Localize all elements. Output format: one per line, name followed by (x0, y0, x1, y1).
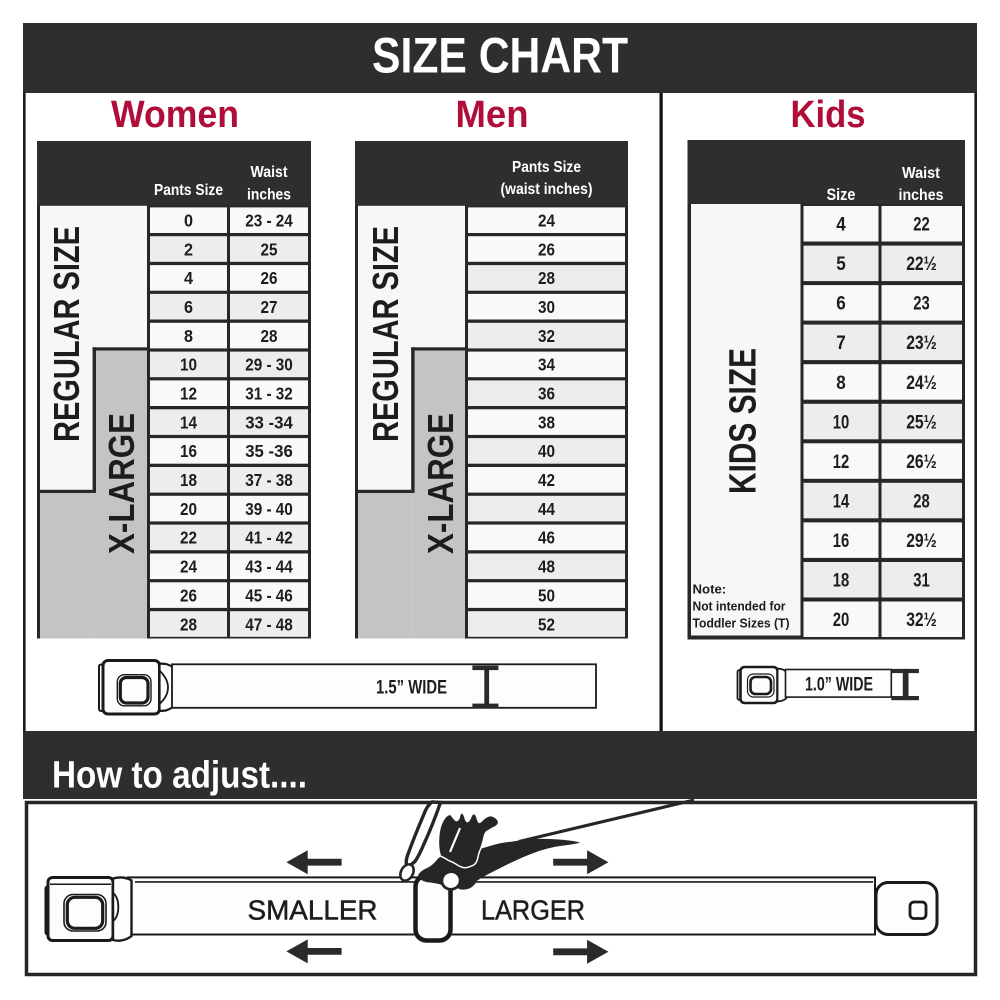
svg-text:36: 36 (538, 384, 555, 404)
svg-text:26½: 26½ (906, 452, 937, 473)
svg-text:SIZE CHART: SIZE CHART (372, 28, 628, 84)
svg-text:29 - 30: 29 - 30 (245, 355, 293, 375)
svg-text:52: 52 (538, 614, 555, 634)
svg-text:Toddler Sizes (T): Toddler Sizes (T) (693, 616, 790, 631)
svg-text:28: 28 (261, 326, 278, 346)
svg-text:20: 20 (833, 610, 850, 631)
svg-text:inches: inches (899, 187, 944, 204)
svg-text:31: 31 (913, 571, 930, 592)
svg-text:35 -36: 35 -36 (245, 441, 293, 461)
svg-text:46: 46 (538, 528, 555, 548)
svg-text:44: 44 (538, 499, 555, 519)
svg-text:30: 30 (538, 297, 555, 317)
svg-text:23½: 23½ (906, 333, 937, 354)
svg-text:Men: Men (456, 94, 529, 136)
svg-text:6: 6 (836, 294, 846, 315)
svg-text:LARGER: LARGER (481, 895, 585, 926)
svg-text:26: 26 (538, 239, 555, 259)
svg-text:Pants Size: Pants Size (154, 182, 223, 199)
svg-text:Waist: Waist (902, 165, 940, 182)
svg-text:31 - 32: 31 - 32 (245, 384, 293, 404)
svg-text:12: 12 (833, 452, 850, 473)
svg-text:12: 12 (180, 384, 197, 404)
svg-text:25½: 25½ (906, 412, 937, 433)
svg-text:18: 18 (833, 571, 850, 592)
svg-text:16: 16 (833, 531, 850, 552)
svg-text:29½: 29½ (906, 531, 937, 552)
svg-text:18: 18 (180, 470, 197, 490)
svg-text:23: 23 (913, 294, 930, 315)
svg-text:24½: 24½ (906, 373, 937, 394)
svg-text:26: 26 (180, 585, 197, 605)
svg-text:X-LARGE: X-LARGE (420, 413, 461, 554)
svg-text:4: 4 (184, 268, 193, 288)
svg-text:Pants Size: Pants Size (512, 159, 581, 176)
svg-text:8: 8 (836, 373, 846, 394)
svg-text:25: 25 (261, 239, 278, 259)
svg-text:37 - 38: 37 - 38 (245, 470, 293, 490)
svg-text:28: 28 (180, 614, 197, 634)
svg-text:32: 32 (538, 326, 555, 346)
svg-text:Size: Size (827, 185, 856, 204)
svg-text:KIDS SIZE: KIDS SIZE (723, 348, 765, 494)
svg-text:1.0” WIDE: 1.0” WIDE (805, 675, 873, 696)
svg-text:34: 34 (538, 355, 555, 375)
svg-text:32½: 32½ (906, 610, 937, 631)
svg-text:24: 24 (538, 211, 555, 231)
svg-text:REGULAR SIZE: REGULAR SIZE (365, 226, 406, 442)
svg-text:48: 48 (538, 557, 555, 577)
svg-text:X-LARGE: X-LARGE (101, 413, 142, 554)
svg-text:26: 26 (261, 268, 278, 288)
svg-text:42: 42 (538, 470, 555, 490)
svg-text:40: 40 (538, 441, 555, 461)
svg-text:How to adjust....: How to adjust.... (52, 755, 307, 797)
svg-text:47 - 48: 47 - 48 (245, 614, 293, 634)
svg-text:inches: inches (247, 187, 291, 204)
svg-text:22: 22 (913, 215, 930, 236)
svg-text:28: 28 (538, 268, 555, 288)
svg-text:(waist inches): (waist inches) (501, 181, 593, 198)
svg-text:Kids: Kids (791, 94, 866, 136)
svg-text:14: 14 (180, 412, 197, 432)
svg-text:6: 6 (184, 297, 193, 317)
svg-text:22½: 22½ (906, 254, 937, 275)
svg-text:14: 14 (833, 491, 850, 512)
svg-text:22: 22 (180, 528, 197, 548)
svg-text:39 - 40: 39 - 40 (245, 499, 293, 519)
svg-text:SMALLER: SMALLER (248, 895, 378, 926)
svg-text:Not intended for: Not intended for (693, 599, 786, 614)
svg-text:38: 38 (538, 412, 555, 432)
svg-text:28: 28 (913, 491, 930, 512)
svg-text:2: 2 (184, 239, 193, 259)
svg-text:24: 24 (180, 557, 197, 577)
svg-text:23 - 24: 23 - 24 (245, 211, 293, 231)
svg-text:27: 27 (261, 297, 278, 317)
svg-text:0: 0 (184, 211, 193, 231)
svg-text:REGULAR SIZE: REGULAR SIZE (46, 226, 87, 442)
svg-text:16: 16 (180, 441, 197, 461)
svg-text:7: 7 (836, 333, 846, 354)
svg-text:Waist: Waist (251, 164, 288, 181)
svg-text:Women: Women (111, 94, 239, 136)
svg-text:33 -34: 33 -34 (245, 412, 293, 432)
svg-text:43 - 44: 43 - 44 (245, 557, 293, 577)
svg-text:8: 8 (184, 326, 193, 346)
svg-text:5: 5 (836, 254, 846, 275)
svg-text:10: 10 (833, 412, 850, 433)
svg-text:41 - 42: 41 - 42 (245, 528, 293, 548)
svg-text:4: 4 (836, 215, 846, 236)
svg-text:50: 50 (538, 585, 555, 605)
svg-text:10: 10 (180, 355, 197, 375)
svg-text:45 - 46: 45 - 46 (245, 585, 293, 605)
svg-text:20: 20 (180, 499, 197, 519)
svg-text:1.5” WIDE: 1.5” WIDE (376, 678, 447, 699)
svg-text:Note:: Note: (693, 582, 727, 597)
